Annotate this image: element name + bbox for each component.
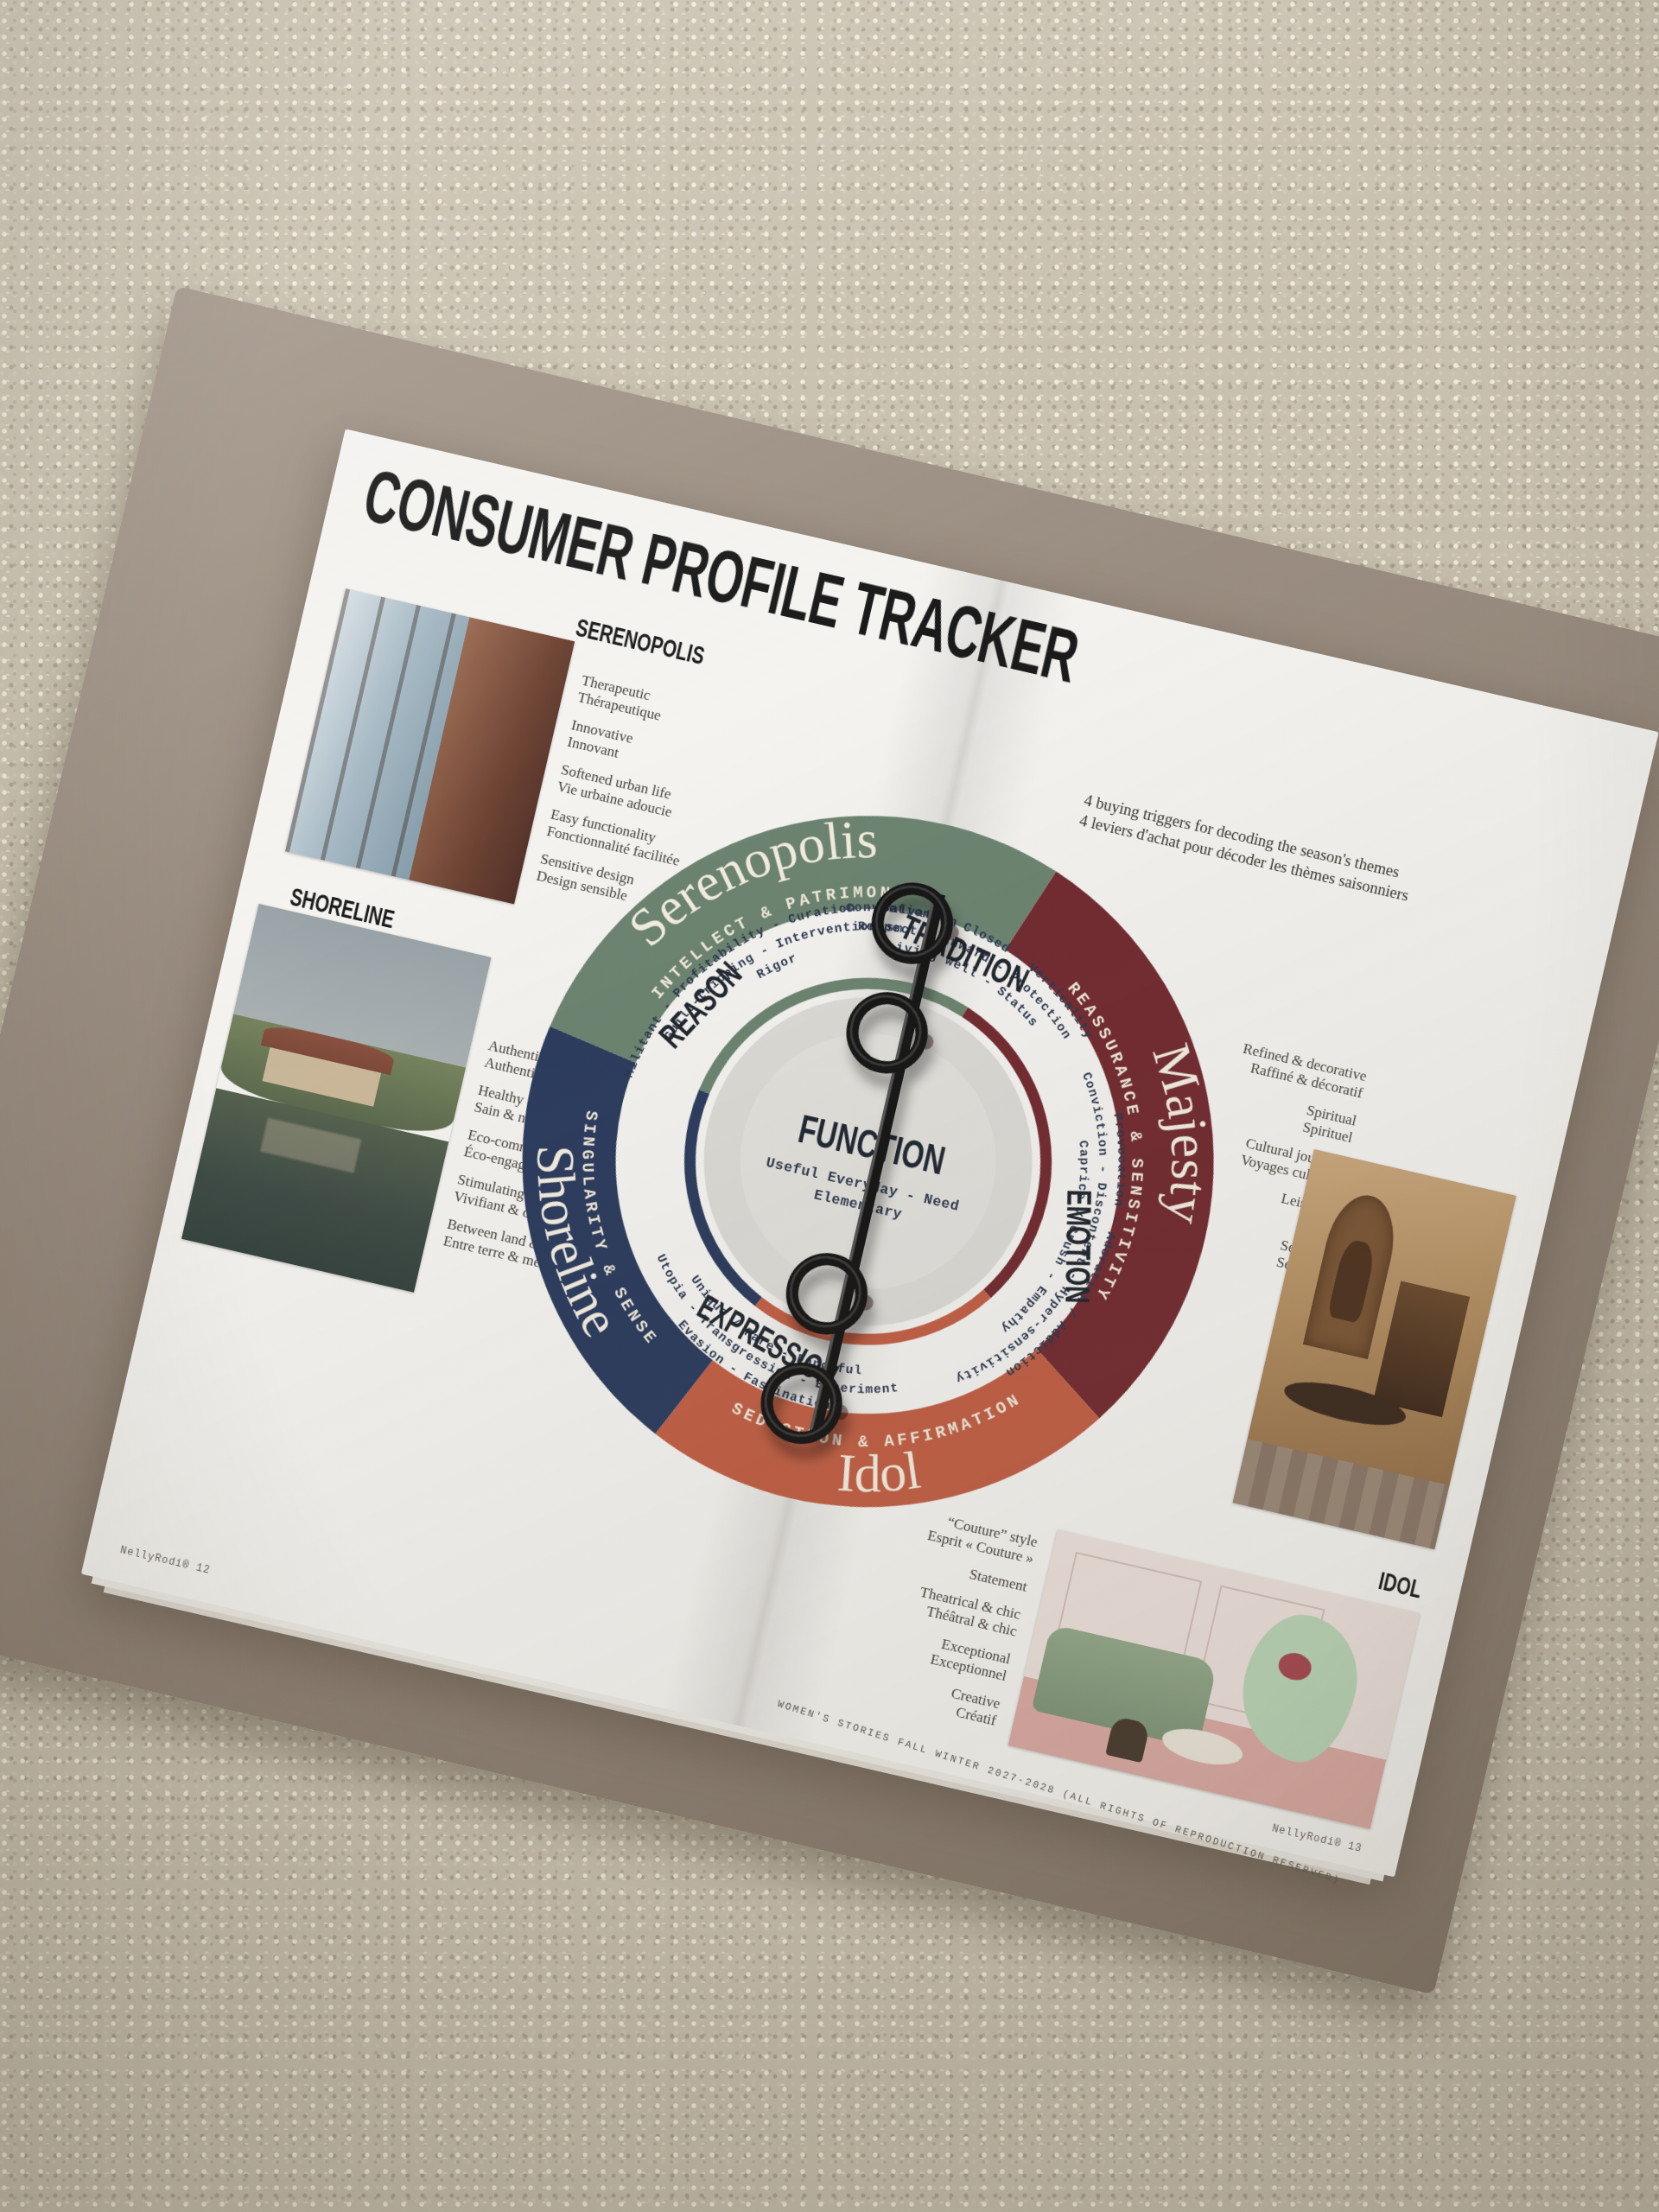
scene-photo-of-binder: { "colors":{ "carpet":"#c9c1af","binder_… — [0, 0, 1659, 2212]
quadrant-label-emotion: EMOTION — [1058, 1189, 1098, 1304]
